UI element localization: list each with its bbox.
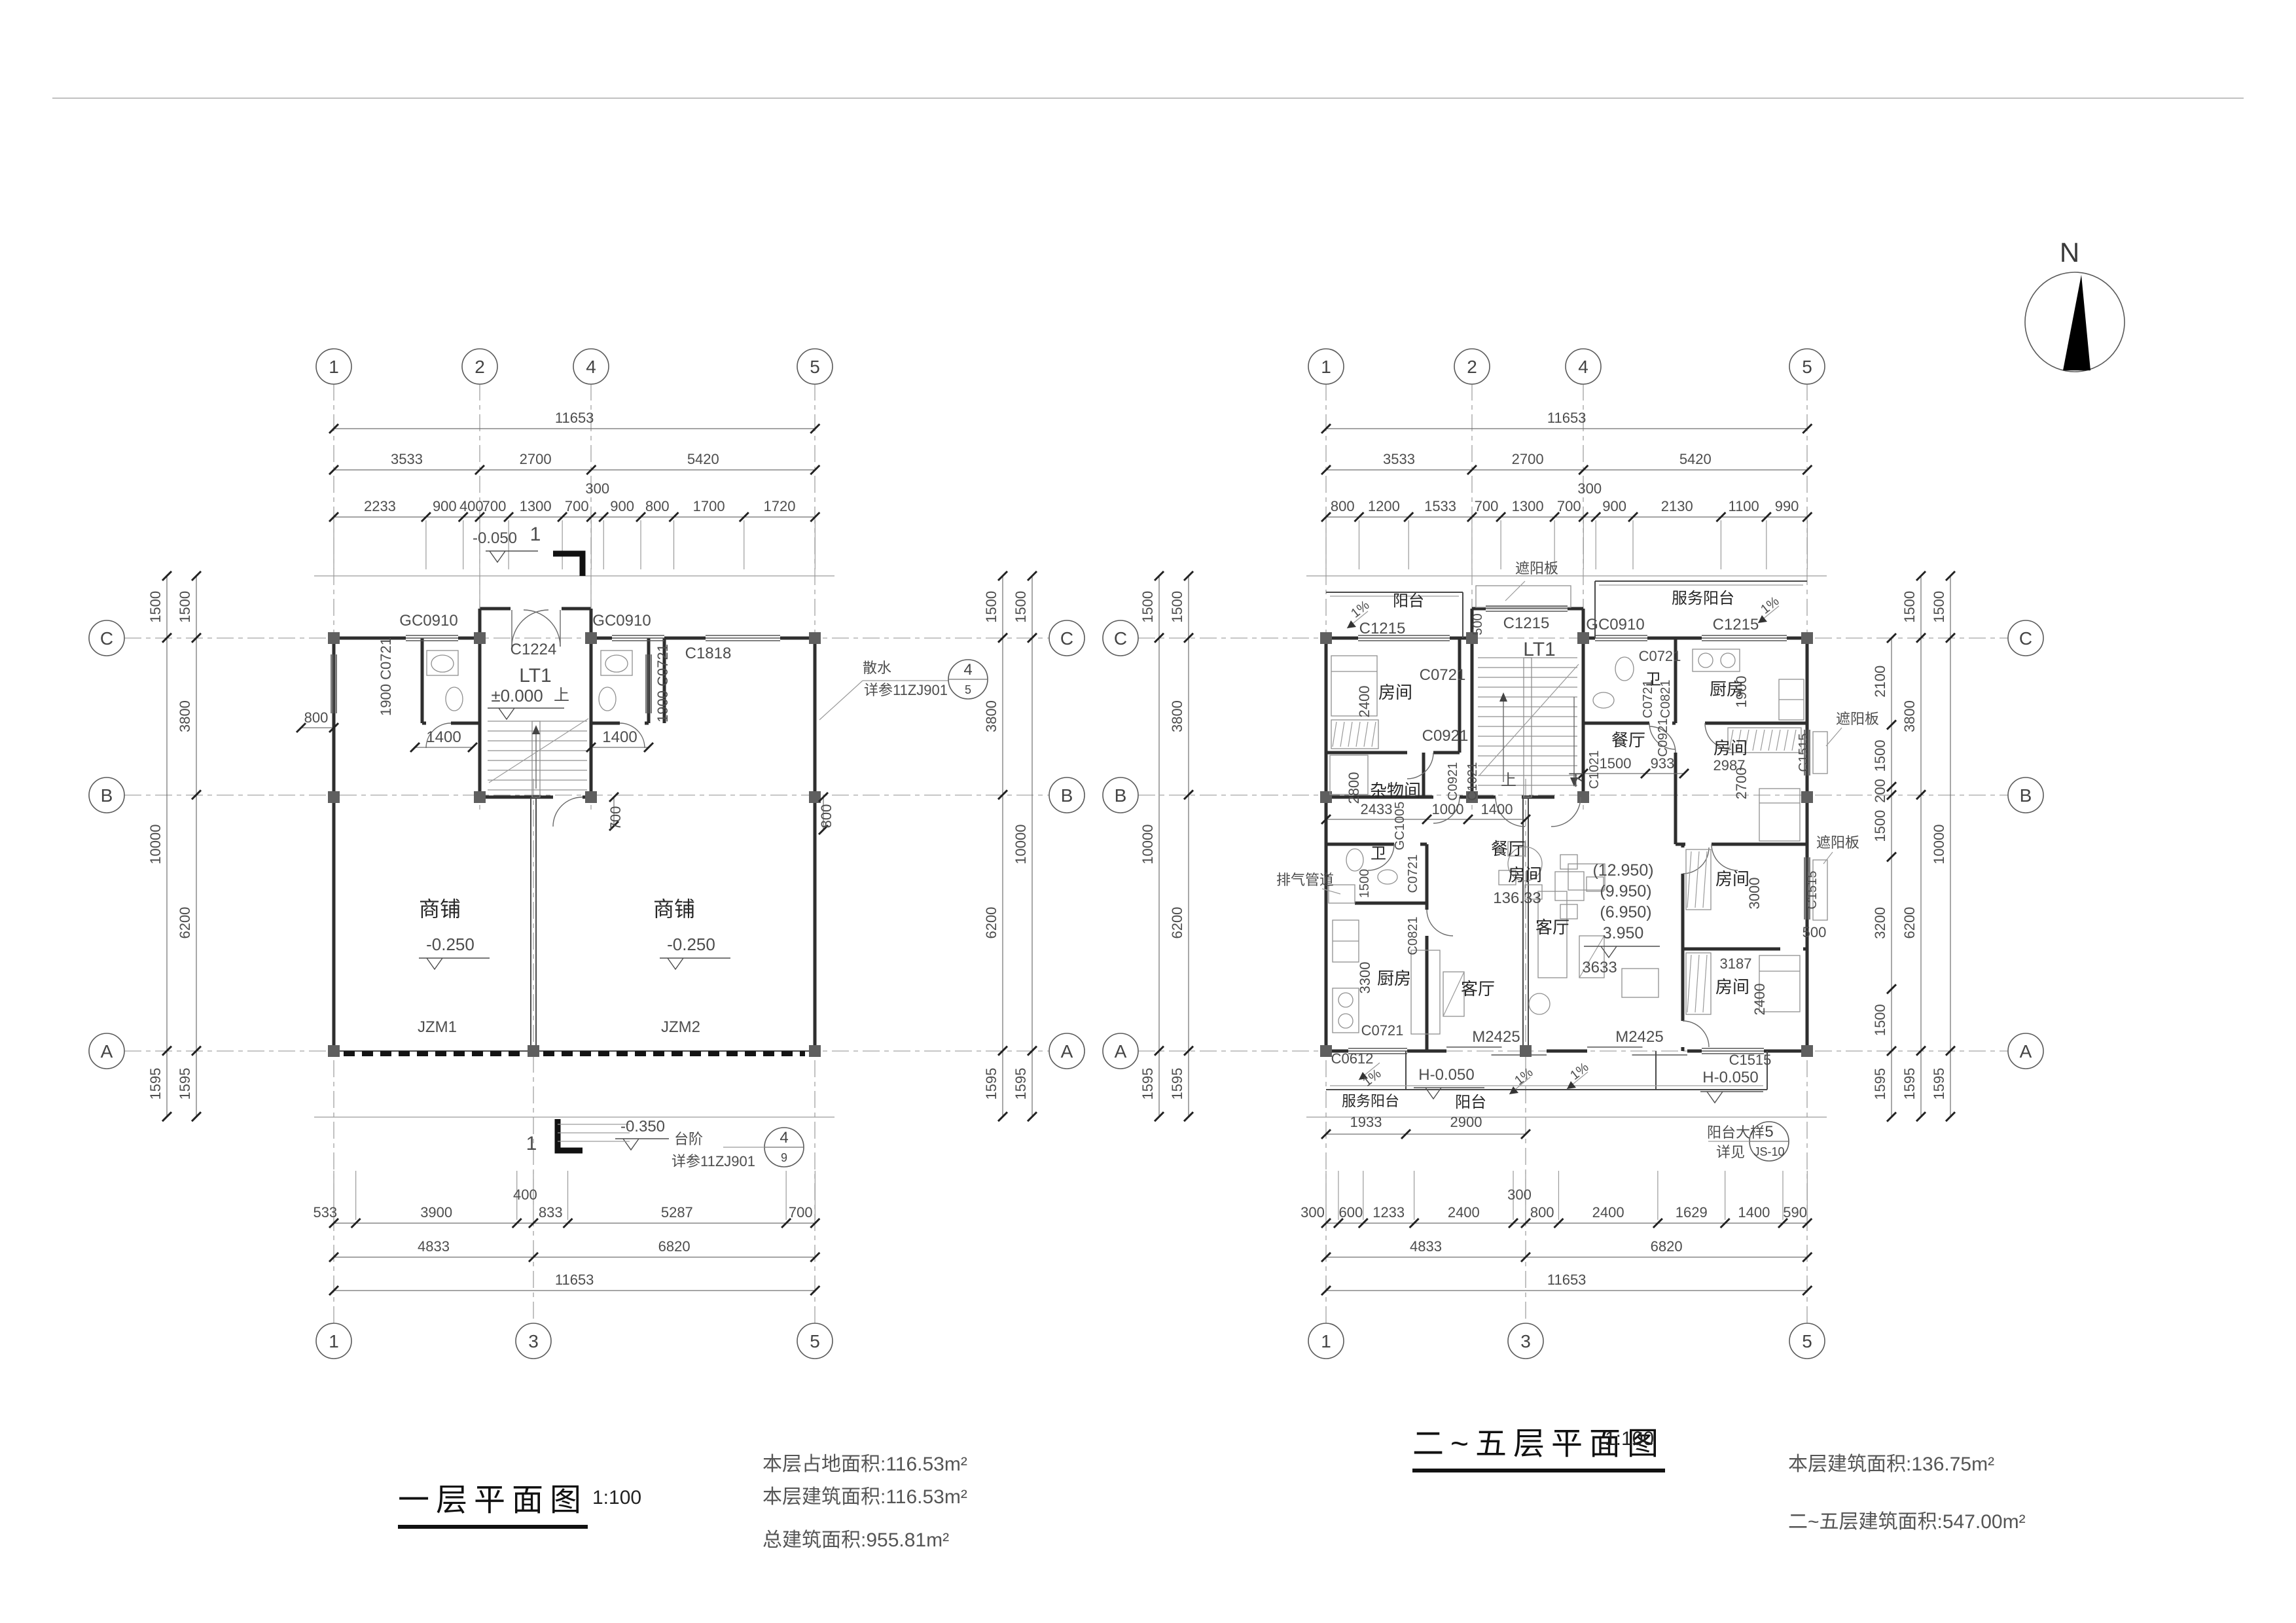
plan-label: 1900 [1733,676,1749,708]
level-triangle [623,1139,639,1150]
bed [1759,789,1800,841]
column [809,1045,821,1057]
grid-bubble-label: 3 [528,1331,539,1351]
stair-break [1479,664,1579,776]
plan-label: 2400 [1751,984,1768,1016]
plan-label: C0721 [1641,680,1655,719]
grid-bubble-label: C [100,628,113,649]
plan-label: (6.950) [1600,903,1651,921]
plan-label: 房间 [1715,977,1749,997]
dim-label: 300 [1507,1186,1532,1203]
column [328,1045,340,1057]
right-plan-scale: 1:100 [1605,1428,1654,1450]
dim-label: 11653 [555,410,594,426]
toilet [599,687,616,711]
hatch [1687,955,1691,1012]
dim-label: 3800 [983,700,999,732]
plan-label: 1400 [426,728,461,746]
column [328,791,340,803]
hatch [1695,955,1699,1012]
grid-bubble-label: C [1114,628,1127,649]
burner [1338,1014,1353,1028]
dim-label: 10000 [1139,825,1156,865]
grid-bubble-label: B [2020,785,2032,806]
dim-label: 990 [1775,498,1799,514]
grid-bubble-label: 5 [1802,357,1812,377]
plan-label: 遮阳板 [1836,711,1879,727]
plan-label: 详参11ZJ901 [864,682,948,698]
plan-label: 800 [304,709,329,726]
door-arc [1407,753,1433,779]
plan-label: -0.050 [473,529,517,547]
door-arc [1427,910,1453,936]
plan-label: GC0910 [399,612,457,630]
grid-bubble-label: 5 [810,357,820,377]
plan-label: H-0.050 [1418,1066,1474,1084]
plan-label: H-0.050 [1702,1069,1758,1086]
plan-label: C1021 [1465,762,1480,801]
dim-label: 1300 [1512,498,1544,514]
stove [1333,988,1359,1033]
dim-label: 3533 [1383,451,1415,467]
hatch [1687,851,1691,908]
dim-label: 800 [1530,1204,1554,1221]
toilet [446,687,463,711]
plan-label: 700 [607,806,624,830]
dim-label: 1500 [177,591,193,623]
hatch [1768,730,1772,751]
plan-label: 客厅 [1461,979,1495,999]
detail-sheet: 5 [965,683,971,696]
leader [1826,728,1842,746]
plan-label: 商铺 [653,897,695,921]
plan-label: 杂物间 [1370,781,1421,800]
dim-label: 11653 [1547,410,1587,426]
dim-label: 1500 [1013,591,1029,623]
plan-label: 排气管道 [1276,872,1334,888]
plan-label: 3000 [1746,878,1763,910]
leader [1823,852,1833,864]
dim-label: 2700 [1512,451,1544,467]
burner [1698,653,1713,668]
grid-bubble-label: A [1115,1041,1127,1061]
plan-label: 餐厅 [1611,730,1645,750]
column [1801,1045,1813,1057]
dim-label: 300 [585,480,609,497]
dim-label: 600 [1339,1204,1363,1221]
plan-label: 3187 [1720,955,1752,972]
hatch [1340,722,1344,747]
dim-label: 4833 [418,1238,450,1255]
plan-label: (9.950) [1600,882,1651,901]
plan-label: 房间 [1713,738,1748,758]
dim-label: 4833 [1410,1238,1442,1255]
grid-bubble-label: 5 [1802,1331,1812,1351]
plan-label: C0821 [1659,680,1673,719]
dim-label: 590 [1783,1204,1807,1221]
hatch [1333,722,1336,747]
level-triangle [427,958,442,969]
plan-label: 2800 [1346,772,1362,804]
dim-label: 6200 [1169,907,1185,939]
plan-label: LT1 [1523,639,1555,660]
dim-label: 1500 [1872,740,1888,772]
dim-label: 900 [1602,498,1626,514]
chair [1560,904,1577,919]
plan-label: M2425 [1615,1028,1663,1046]
plan-label: C1215 [1359,620,1406,637]
plan-label: 餐厅 [1491,839,1525,859]
plan-label: 3300 [1357,962,1373,994]
toilet [1615,657,1634,681]
dim-label: 6200 [983,907,999,939]
plan-label: 阳台 [1393,592,1424,610]
dim-label: 2400 [1448,1204,1480,1221]
dim-label: 3800 [177,700,193,732]
dim-label: 1595 [1139,1067,1156,1099]
hatch [1792,730,1796,751]
grid-bubble-label: B [1061,785,1073,806]
plan-label: 1% [1348,598,1372,621]
shade-board [1476,586,1571,607]
plan-label: M2425 [1472,1028,1520,1046]
grid-bubble-label: 2 [475,357,485,377]
dim-label: 1595 [1013,1067,1029,1099]
door-arc [553,797,583,827]
grid-bubble-label: A [2020,1041,2032,1061]
fan [1529,993,1550,1014]
hatch [1703,955,1707,1012]
plan-label: -0.250 [667,935,715,954]
door-arc [1712,844,1738,870]
dim-label: 1200 [1368,498,1400,514]
plan-label: 客厅 [1535,918,1570,937]
plan-label: 1% [1512,1065,1535,1088]
sink [431,655,454,672]
dim-label: 2100 [1872,666,1888,698]
plan-label: C0721 [1420,666,1466,684]
plan-label: C1515 [1729,1052,1772,1068]
dim-label: 1595 [147,1067,164,1099]
plan-label: LT1 [519,665,551,687]
dim-label: 6820 [658,1238,691,1255]
plan-label: JZM2 [661,1018,700,1036]
plan-label: 3.950 [1603,924,1644,942]
grid-bubble-label: 1 [1321,357,1331,377]
plan-label: C0921 [1422,727,1469,745]
dim-label: 533 [313,1204,337,1221]
dim-label: 800 [1331,498,1355,514]
plan-label: 散水 [863,660,891,676]
dim-label: 5420 [1679,451,1712,467]
dim-label: 1700 [693,498,725,514]
dim-label: 10000 [1013,825,1029,865]
plan-label: 上 [1501,772,1516,789]
dim-label: 1300 [520,498,552,514]
plan-label: 商铺 [419,897,461,921]
plan-label: C1215 [1713,616,1759,633]
dim-label: 1500 [1872,810,1888,842]
grid-bubble-label: 1 [1321,1331,1331,1351]
plan-label: 卫 [1371,845,1386,863]
column [1801,632,1813,644]
hatch [1753,730,1757,751]
floor-plan-drawing: 1245135CCBBAA1245135CCBBAA11653353327005… [0,0,2296,1623]
plan-label: 1900 C0721 [655,644,671,722]
plan-label: JZM1 [418,1018,457,1036]
grid-bubble-label: C [1060,628,1073,649]
hatch [1348,722,1352,747]
plan-label: C0921 [1446,762,1460,801]
plan-label: 1900 C0721 [378,637,394,716]
dim-label: 5420 [687,451,719,467]
dim-label: 800 [645,498,670,514]
wardrobe [1331,720,1378,749]
dim-label: 1533 [1424,498,1456,514]
plan-label: 详参11ZJ901 [672,1153,755,1169]
dim-label: 2700 [520,451,552,467]
plan-label: 1 [526,1133,537,1154]
dim-label: 6200 [1901,907,1918,939]
plan-label: 1500 [1357,869,1372,899]
hatch [1372,722,1376,747]
left-plan-title: 一层平面图 [398,1474,588,1529]
dim-label: 1100 [1728,498,1759,514]
armchair [1622,969,1659,997]
dim-label: 1720 [764,498,796,514]
plan-label: 遮阳板 [1515,560,1558,577]
dim-label: 300 [1300,1204,1325,1221]
plan-label: 阳台大样 [1707,1124,1765,1141]
dim-label: 3900 [420,1204,452,1221]
plan-label: 房间 [1508,865,1542,885]
column [1801,791,1813,803]
stair-arrowhead [532,725,540,734]
plan-label: 1400 [1481,801,1513,817]
north-label: N [2060,237,2079,268]
plan-label: C1215 [1503,615,1550,632]
dim-label: 2233 [364,498,396,514]
dim-label: 2400 [1592,1204,1624,1221]
column [585,632,597,644]
stove [1693,649,1740,671]
leader [1505,581,1525,601]
plan-label: C1515 [1797,734,1811,772]
plan-label: 1500 [1600,755,1632,772]
hatch [1356,722,1360,747]
grid-bubble-label: 4 [586,357,596,377]
sink [605,655,628,672]
dim-label: 3800 [1901,700,1918,732]
plan-label: 2400 [1356,686,1372,718]
level-triangle [499,708,514,719]
dim-label: 6820 [1651,1238,1683,1255]
burner [1338,993,1353,1007]
plan-label: C0721 [1639,648,1681,664]
plan-label: 933 [1651,755,1675,772]
plan-label: 3633 [1582,959,1617,976]
hatch [1364,722,1368,747]
dim-label: 1233 [1372,1204,1405,1221]
dim-label: 3533 [391,451,423,467]
hatch [1784,730,1788,751]
plan-label: 厨房 [1377,969,1411,988]
column [809,632,821,644]
left-note-3: 总建筑面积:955.81m² [762,1524,949,1552]
column [474,791,486,803]
section-mark [558,1119,583,1150]
dim-label: 700 [789,1204,813,1221]
plan-label: GC1005 [1393,802,1407,851]
plan-label: -0.350 [620,1118,665,1135]
plan-label: C0721 [1361,1022,1404,1039]
dim-label: 1500 [1901,591,1918,623]
column [1577,791,1589,803]
plan-label: C1515 [1805,871,1820,910]
plan-label: (12.950) [1592,861,1653,880]
grid-bubble-label: A [1061,1041,1073,1061]
hatch [1703,851,1707,908]
left-note-1: 本层占地面积:116.53m² [762,1448,967,1476]
burner [1721,653,1735,668]
dim-label: 3800 [1169,700,1185,732]
dim-label: 1629 [1676,1204,1708,1221]
column [1520,1045,1532,1057]
detail-number: 4 [780,1129,788,1147]
plan-label: 房间 [1715,869,1749,889]
dim-label: 1500 [1169,591,1185,623]
shade-board [1813,732,1827,774]
grid-bubble-label: 2 [1467,357,1477,377]
dim-label: 10000 [147,825,164,865]
chair [1560,855,1577,869]
plan-label: 上 [554,687,569,704]
column [1577,632,1589,644]
plan-label: 2900 [1450,1114,1482,1130]
sink [1378,870,1397,884]
detail-sheet: JS-10 [1753,1145,1784,1158]
door-arc [1683,847,1709,874]
grid-bubble-label: B [101,785,113,806]
plan-label: 2433 [1361,801,1393,817]
dim-label: 700 [482,498,507,514]
level-triangle [1601,946,1617,957]
plan-label: GC0910 [1586,616,1644,633]
column [328,632,340,644]
plan-label: C0821 [1406,917,1420,955]
left-note-2: 本层建筑面积:116.53m² [762,1480,967,1509]
dim-label: 400 [513,1186,537,1203]
dim-label: 1500 [1931,591,1947,623]
dining-table [1555,872,1584,901]
stair-rail [1524,658,1532,797]
dim-label: 3200 [1872,907,1888,939]
hatch [1695,851,1699,908]
dim-label: 5287 [661,1204,693,1221]
column [528,1045,539,1057]
plan-label: 下 [1568,772,1584,789]
plan-label: C0921 [1656,719,1670,757]
dim-label: 10000 [1931,825,1947,865]
plan-label: 1000 [1432,801,1464,817]
plan-label: 服务阳台 [1342,1093,1399,1109]
level-triangle [668,958,683,969]
plan-label: 1 [530,524,541,545]
dim-label: 900 [433,498,457,514]
plan-label: 1% [1758,594,1782,617]
detail-sheet: 9 [781,1151,787,1164]
column [474,632,486,644]
level-triangle [490,551,505,562]
grid-bubble-label: B [1115,785,1127,806]
grid-bubble-label: 5 [810,1331,820,1351]
plan-label: 500 [1803,924,1827,940]
grid-bubble-label: A [101,1041,113,1061]
dim-label: 1500 [147,591,164,623]
drawing-sheet: 1245135CCBBAA1245135CCBBAA11653353327005… [0,0,2296,1623]
hatch [1761,730,1765,751]
plan-label: C1224 [511,641,557,658]
dim-label: 6200 [177,907,193,939]
plan-label: ±0.000 [491,686,543,705]
dim-label: 400 [459,498,484,514]
dim-label: 1595 [1931,1067,1947,1099]
plan-label: 台阶 [674,1131,703,1147]
plan-label: 服务阳台 [1672,590,1734,607]
plan-label: 房间 [1378,683,1412,702]
dim-label: 1500 [1139,591,1156,623]
door-arc [1683,1021,1709,1047]
door-arc [1551,797,1581,827]
hatch [1776,730,1780,751]
dim-label: 700 [1475,498,1499,514]
grid-bubble-label: 3 [1520,1331,1531,1351]
level-triangle [1707,1092,1723,1103]
dim-label: 700 [565,498,589,514]
dim-label: 200 [1872,779,1888,803]
dim-label: 1400 [1738,1204,1770,1221]
dim-label: 1500 [1872,1004,1888,1036]
dim-label: 900 [610,498,634,514]
plan-label: 1% [1568,1060,1591,1083]
plan-label: GC0910 [592,612,651,630]
dim-label: 1595 [177,1067,193,1099]
dim-label: 11653 [1547,1272,1587,1288]
grid-bubble-label: C [2019,628,2032,649]
dim-label: 1595 [1169,1067,1185,1099]
plan-label: 500 [1471,613,1485,635]
plan-label: 800 [818,804,834,829]
plan-label: 136.33 [1493,889,1541,907]
dim-label: 1500 [983,591,999,623]
plan-label: 1400 [602,728,637,746]
plan-label: 2700 [1733,768,1749,800]
column [1320,1045,1332,1057]
leader [819,681,863,720]
section-mark [553,554,583,576]
dim-label: 300 [1577,480,1602,497]
column [1320,632,1332,644]
dim-label: 11653 [555,1272,594,1288]
dim-label: 1595 [1901,1067,1918,1099]
plan-label: C0721 [1406,855,1420,893]
dim-label: 1595 [1872,1068,1888,1100]
toilet [1346,849,1363,871]
plan-label: 阳台 [1455,1094,1486,1111]
grid-bubble-label: 1 [329,1331,339,1351]
dim-label: 2130 [1661,498,1693,514]
sink [1593,692,1614,708]
